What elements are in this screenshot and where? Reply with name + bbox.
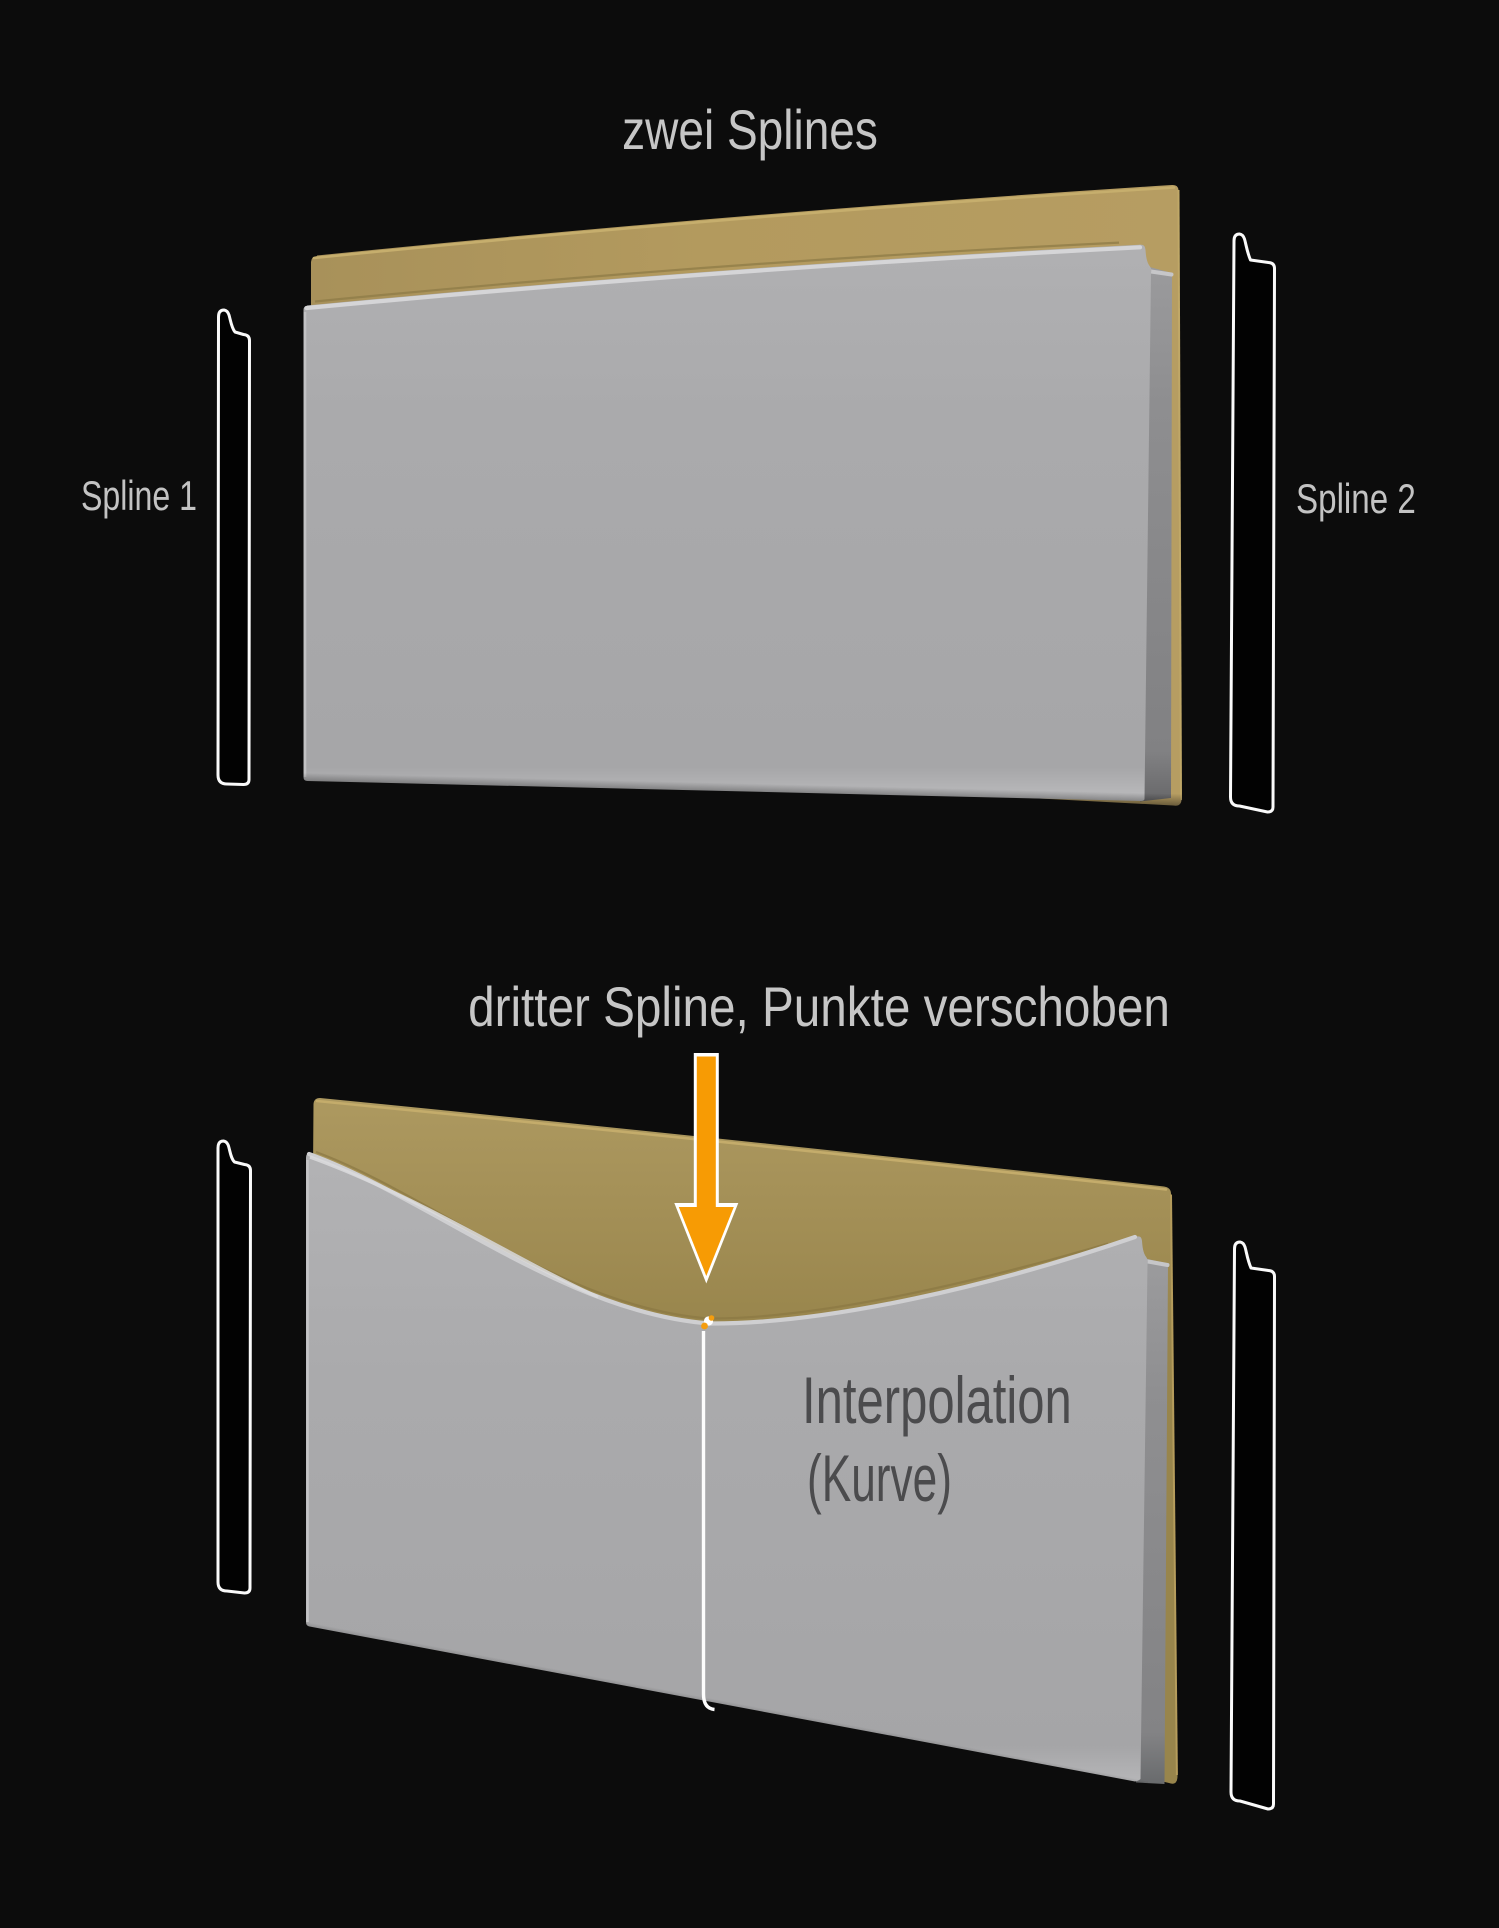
svg-text:dritter Spline, Punkte verscho: dritter Spline, Punkte verschoben	[468, 976, 1170, 1038]
svg-text:zwei Splines: zwei Splines	[622, 99, 878, 161]
svg-text:(Kurve): (Kurve)	[807, 1441, 952, 1515]
svg-text:Interpolation: Interpolation	[802, 1364, 1072, 1438]
svg-text:Spline 2: Spline 2	[1296, 476, 1416, 523]
svg-text:Spline 1: Spline 1	[81, 472, 197, 519]
